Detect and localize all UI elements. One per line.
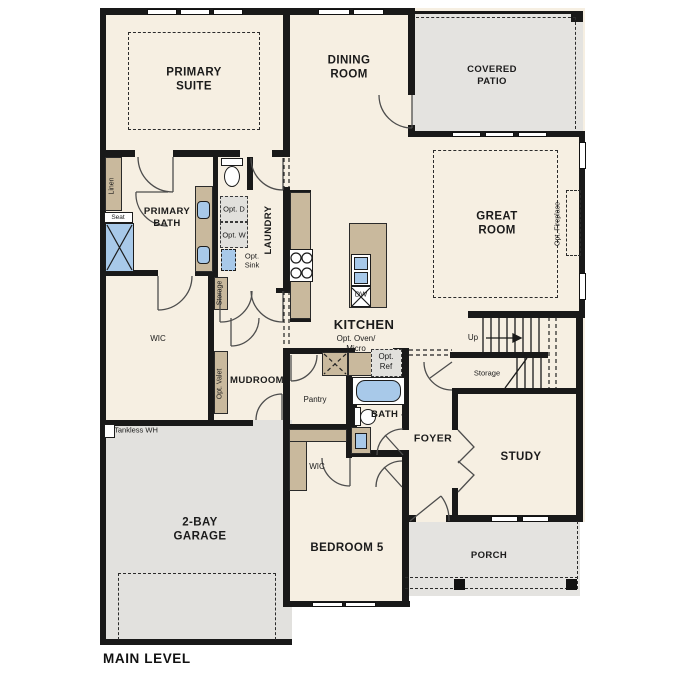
- patio-door: [379, 95, 412, 128]
- label-wic-bedroom5: WIC: [309, 462, 325, 472]
- label-opt-fireplace: Opt. Fireplace: [555, 202, 564, 246]
- label-linen: Linen: [109, 177, 118, 194]
- garage-entry-door: [256, 394, 282, 420]
- label-opt-sink: Opt. Sink: [239, 252, 265, 271]
- label-opt-d: Opt. D: [222, 204, 246, 213]
- label-storage-stairs: Storage: [474, 368, 500, 377]
- label-primary-suite: PRIMARY SUITE: [159, 66, 229, 95]
- page-title: MAIN LEVEL: [103, 651, 191, 666]
- burner-4: [302, 268, 312, 278]
- label-seat: Seat: [111, 214, 124, 222]
- label-bedroom-5: BEDROOM 5: [287, 541, 407, 555]
- primary-suite-door: [138, 157, 173, 192]
- floor-plan: PRIMARY SUITE DINING ROOM COVERED PATIO …: [0, 0, 687, 687]
- label-covered-patio: COVERED PATIO: [461, 64, 523, 88]
- label-study: STUDY: [486, 450, 556, 464]
- burner-1: [291, 253, 301, 263]
- label-pantry: Pantry: [303, 395, 326, 405]
- label-foyer: FOYER: [403, 432, 463, 445]
- label-bath-4: BATH 4: [371, 409, 407, 421]
- label-primary-bath: PRIMARY BATH: [139, 206, 195, 230]
- label-opt-oven-micro: Opt. Oven/ Micro: [327, 334, 385, 354]
- label-dw: DW: [355, 289, 368, 298]
- mudroom-door: [231, 318, 259, 346]
- bedroom5-door: [376, 461, 402, 487]
- label-up: Up: [468, 333, 478, 343]
- label-kitchen: KITCHEN: [309, 317, 419, 333]
- label-tankless-wh: Tankless WH: [114, 425, 158, 434]
- shower-x: [107, 225, 132, 270]
- laundry-door-right: [251, 291, 283, 322]
- label-opt-w: Opt. W: [222, 230, 246, 239]
- label-laundry: LAUNDRY: [263, 206, 275, 255]
- bath4-door: [377, 429, 403, 455]
- label-porch: PORCH: [454, 550, 524, 562]
- burner-2: [302, 253, 312, 263]
- label-opt-ref: Opt. Ref: [373, 352, 399, 372]
- label-storage-hall: Storage: [217, 281, 226, 306]
- cased-openings: [284, 158, 556, 388]
- label-wic-primary: WIC: [150, 334, 166, 344]
- burner-3: [291, 268, 301, 278]
- label-great-room: GREAT ROOM: [467, 210, 527, 239]
- hall-opening-door: [251, 158, 283, 190]
- opt-oven-x: [324, 354, 346, 374]
- stair-storage-door: [424, 362, 452, 390]
- front-door: [410, 496, 449, 521]
- label-garage: 2-BAY GARAGE: [170, 516, 230, 545]
- primary-wic-door: [158, 276, 192, 310]
- label-dining-room: DINING ROOM: [322, 54, 376, 83]
- label-mudroom: MUDROOM: [217, 375, 297, 387]
- wic5-door: [322, 458, 350, 486]
